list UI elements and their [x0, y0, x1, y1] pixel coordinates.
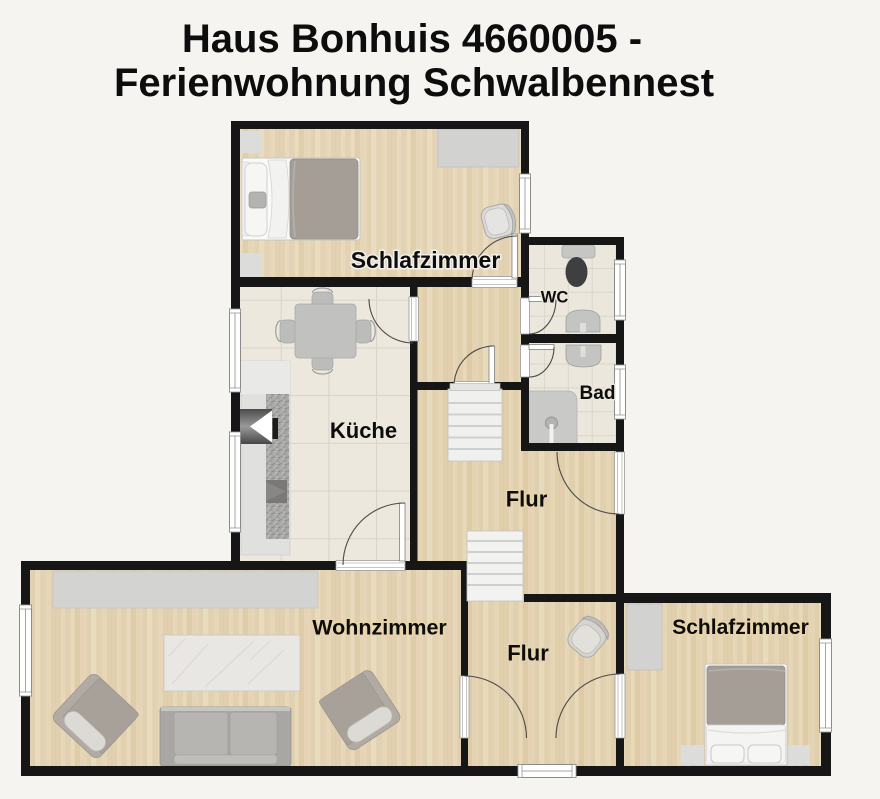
svg-text:Haus Bonhuis 4660005 -: Haus Bonhuis 4660005 - [182, 17, 642, 61]
svg-text:Schlafzimmer: Schlafzimmer [351, 247, 501, 273]
svg-text:Flur: Flur [506, 487, 548, 512]
svg-text:Schlafzimmer: Schlafzimmer [672, 616, 809, 639]
svg-text:Bad: Bad [580, 383, 616, 404]
svg-text:WC: WC [541, 289, 569, 307]
svg-text:Küche: Küche [330, 418, 397, 443]
svg-text:Ferienwohnung Schwalbennest: Ferienwohnung Schwalbennest [114, 61, 714, 105]
svg-text:Flur: Flur [507, 641, 549, 666]
svg-text:Wohnzimmer: Wohnzimmer [312, 616, 447, 640]
